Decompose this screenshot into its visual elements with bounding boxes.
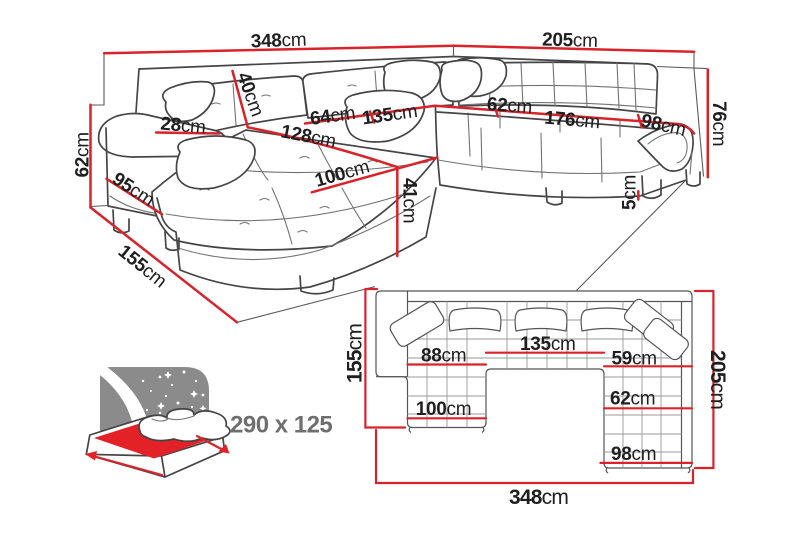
svg-text:205cm: 205cm xyxy=(542,30,598,52)
svg-text:59cm: 59cm xyxy=(612,349,657,370)
svg-text:41cm: 41cm xyxy=(399,178,420,223)
svg-text:62cm: 62cm xyxy=(73,132,94,177)
svg-text:348cm: 348cm xyxy=(250,30,306,53)
svg-text:100cm: 100cm xyxy=(416,399,472,420)
svg-text:28cm: 28cm xyxy=(160,114,207,139)
svg-text:5cm: 5cm xyxy=(620,175,641,210)
svg-text:290 x 125: 290 x 125 xyxy=(230,412,332,439)
svg-text:155cm: 155cm xyxy=(344,324,367,383)
svg-text:62cm: 62cm xyxy=(610,389,655,410)
svg-text:62cm: 62cm xyxy=(486,94,533,118)
svg-text:76cm: 76cm xyxy=(708,101,729,146)
svg-text:205cm: 205cm xyxy=(706,350,729,409)
svg-text:98cm: 98cm xyxy=(611,444,656,465)
svg-text:88cm: 88cm xyxy=(421,346,466,367)
svg-text:348cm: 348cm xyxy=(509,486,568,509)
svg-text:135cm: 135cm xyxy=(520,334,576,355)
